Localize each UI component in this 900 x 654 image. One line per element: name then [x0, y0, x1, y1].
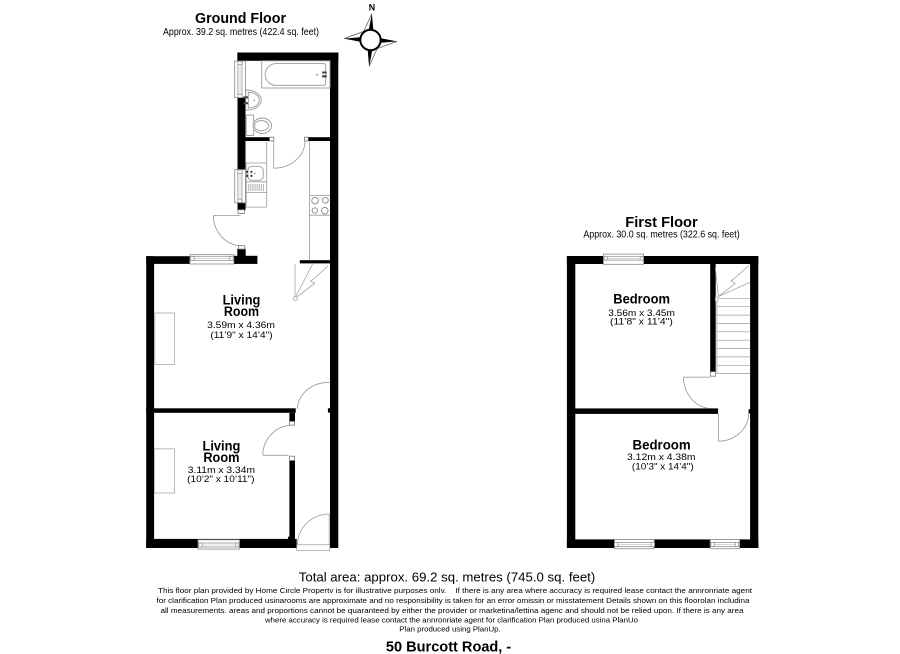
svg-text:(11’8" x 11’4"): (11’8" x 11’4")	[610, 316, 673, 327]
svg-text:Plan produced using PlanUp.: Plan produced using PlanUp.	[399, 625, 500, 634]
svg-text:Bedroom: Bedroom	[633, 437, 691, 452]
svg-text:Room: Room	[224, 304, 259, 319]
svg-text:where accuracy is required lea: where accuracy is required lease contact…	[264, 616, 638, 625]
svg-text:(11’9" x 14’4"): (11’9" x 14’4")	[210, 330, 272, 341]
svg-text:(10’2" x 10’11"): (10’2" x 10’11")	[187, 474, 254, 485]
svg-text:Total area: approx. 69.2 sq. m: Total area: approx. 69.2 sq. metres (745…	[299, 571, 596, 585]
svg-text:N: N	[369, 2, 376, 13]
svg-text:Approx. 30.0 sq. metres (322.6: Approx. 30.0 sq. metres (322.6 sq. feet)	[583, 229, 739, 240]
svg-text:Bedroom: Bedroom	[613, 292, 670, 307]
svg-text:(10’3" x 14’4"): (10’3" x 14’4")	[632, 461, 694, 472]
svg-text:all measurements. areas and pr: all measurements. areas and proportions …	[161, 606, 745, 615]
svg-text:for clarification Plan produce: for clarification Plan produced usinaroo…	[157, 596, 751, 605]
svg-text:Room: Room	[203, 450, 239, 465]
svg-text:Ground Floor: Ground Floor	[195, 11, 286, 27]
svg-text:This floor plan provided by Ho: This floor plan provided by Home Circle …	[158, 586, 753, 595]
svg-text:Approx. 39.2 sq. metres (422.4: Approx. 39.2 sq. metres (422.4 sq. feet)	[163, 27, 319, 38]
svg-text:50 Burcott Road, -: 50 Burcott Road, -	[386, 640, 512, 654]
